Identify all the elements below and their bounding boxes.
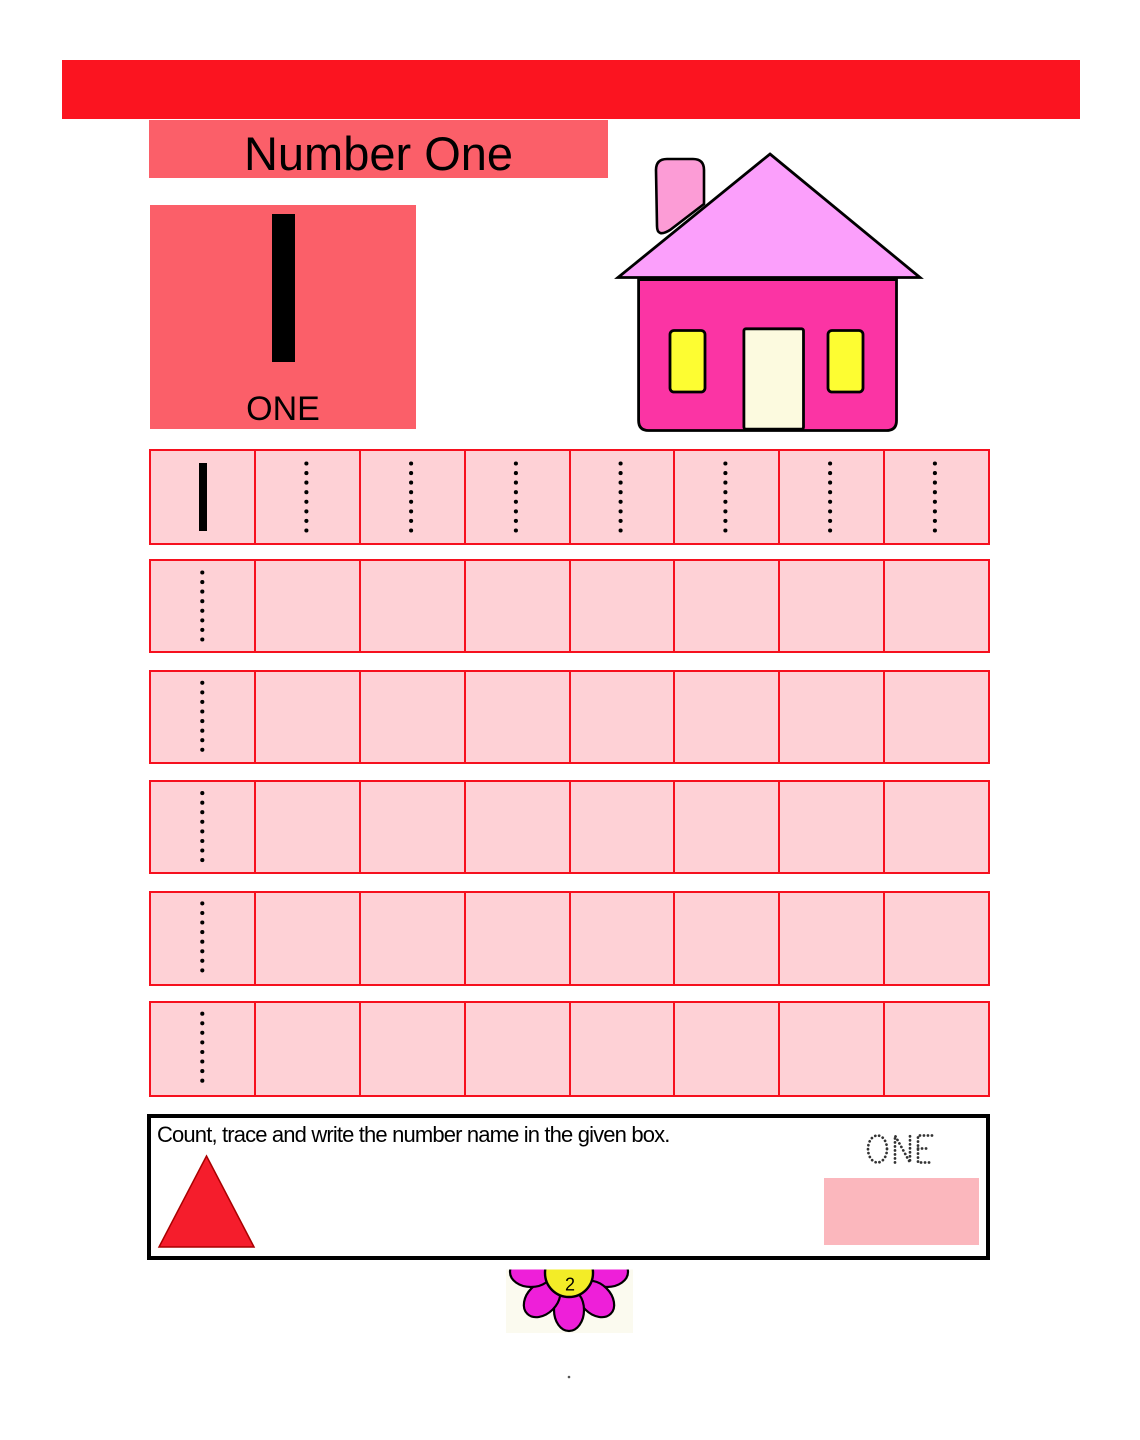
svg-text:2: 2 xyxy=(565,1275,575,1295)
